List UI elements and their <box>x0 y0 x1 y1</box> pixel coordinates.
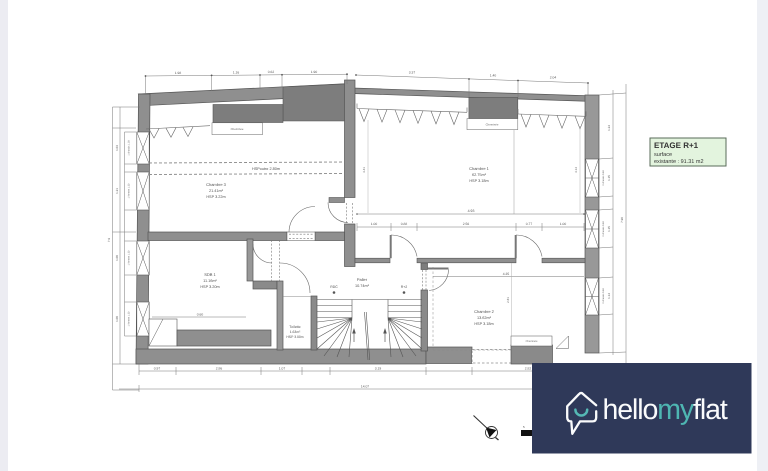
svg-text:1.07: 1.07 <box>279 367 286 371</box>
svg-text:21.41m²: 21.41m² <box>209 189 224 193</box>
svg-text:2 chassis 0.60: 2 chassis 0.60 <box>602 170 605 186</box>
svg-text:1.63m²: 1.63m² <box>290 330 301 334</box>
svg-text:1 fenetre 1.20: 1 fenetre 1.20 <box>128 250 131 265</box>
svg-text:ETAGE R+1: ETAGE R+1 <box>654 141 699 150</box>
svg-text:7.9: 7.9 <box>107 238 111 243</box>
svg-text:hellomyflat: hellomyflat <box>603 394 728 426</box>
svg-text:1.16: 1.16 <box>233 70 240 74</box>
svg-text:4.35: 4.35 <box>503 272 510 276</box>
svg-text:0.60: 0.60 <box>197 313 204 317</box>
svg-text:1.08: 1.08 <box>115 316 119 322</box>
svg-text:SDB 1: SDB 1 <box>204 272 216 277</box>
svg-text:11.16m²: 11.16m² <box>203 279 217 283</box>
svg-text:RDC: RDC <box>330 285 338 289</box>
svg-text:1 fenetre 1.20: 1 fenetre 1.20 <box>128 311 131 326</box>
svg-text:4.41: 4.41 <box>362 167 366 173</box>
svg-text:2.04: 2.04 <box>550 76 557 80</box>
svg-text:1.98: 1.98 <box>175 71 182 75</box>
svg-text:1 fenetre 1.20: 1 fenetre 1.20 <box>128 183 131 198</box>
svg-text:2.81: 2.81 <box>506 297 510 303</box>
svg-text:HSP 3.00m: HSP 3.00m <box>286 335 303 339</box>
svg-text:62.75m²: 62.75m² <box>472 173 487 177</box>
svg-text:HSPoutre 2.80m: HSPoutre 2.80m <box>252 167 280 171</box>
svg-text:0.62: 0.62 <box>268 70 275 74</box>
svg-text:7.90: 7.90 <box>620 217 624 223</box>
svg-text:1.24: 1.24 <box>607 125 611 131</box>
svg-text:0.97: 0.97 <box>154 367 161 371</box>
svg-text:2.56: 2.56 <box>463 222 470 226</box>
svg-text:HSP 3.20m: HSP 3.20m <box>200 285 219 289</box>
svg-text:1.08: 1.08 <box>115 255 119 261</box>
svg-text:1.90: 1.90 <box>311 70 318 74</box>
svg-text:Chambre 1: Chambre 1 <box>469 166 490 171</box>
svg-text:1.15: 1.15 <box>607 226 611 232</box>
svg-text:13.62m²: 13.62m² <box>477 316 492 320</box>
svg-text:1.00: 1.00 <box>371 222 378 226</box>
svg-text:Chambre 3: Chambre 3 <box>206 182 227 187</box>
svg-text:1.14: 1.14 <box>607 293 611 299</box>
svg-text:2 chassis 0.60: 2 chassis 0.60 <box>602 221 605 237</box>
svg-text:R+2: R+2 <box>401 285 408 289</box>
svg-text:2 chassis 0.60: 2 chassis 0.60 <box>602 288 605 304</box>
svg-text:Cheminée: Cheminée <box>231 127 244 131</box>
svg-text:1.21: 1.21 <box>115 188 119 194</box>
svg-text:3.19: 3.19 <box>375 367 382 371</box>
svg-text:HSP 3.22m: HSP 3.22m <box>206 195 225 199</box>
svg-text:14.07: 14.07 <box>361 385 369 389</box>
svg-text:Cheminée: Cheminée <box>526 340 538 343</box>
svg-text:0.77: 0.77 <box>526 222 533 226</box>
svg-text:4.93: 4.93 <box>468 209 475 213</box>
svg-text:0.88: 0.88 <box>401 222 408 226</box>
svg-text:Palier: Palier <box>357 277 368 282</box>
svg-text:1.03: 1.03 <box>115 145 119 151</box>
svg-text:1.40: 1.40 <box>490 74 497 78</box>
svg-text:Chambre 2: Chambre 2 <box>474 309 495 314</box>
svg-text:2.86: 2.86 <box>216 367 223 371</box>
svg-text:2.82: 2.82 <box>525 367 532 371</box>
svg-text:1.00: 1.00 <box>560 222 567 226</box>
svg-text:3.37: 3.37 <box>409 71 416 75</box>
svg-text:HSP 3.18m: HSP 3.18m <box>469 179 488 183</box>
svg-text:1.15: 1.15 <box>607 175 611 181</box>
svg-text:surface: surface <box>654 152 672 158</box>
svg-text:HSP 3.18m: HSP 3.18m <box>474 322 493 326</box>
svg-text:Cheminée: Cheminée <box>486 123 499 127</box>
svg-text:existante : 91.31 m2: existante : 91.31 m2 <box>654 159 704 165</box>
svg-text:10.74m²: 10.74m² <box>355 284 370 288</box>
svg-text:Toilette: Toilette <box>289 325 300 329</box>
svg-text:4.14: 4.14 <box>574 167 578 173</box>
svg-text:1 chassis 1.00: 1 chassis 1.00 <box>128 140 131 156</box>
